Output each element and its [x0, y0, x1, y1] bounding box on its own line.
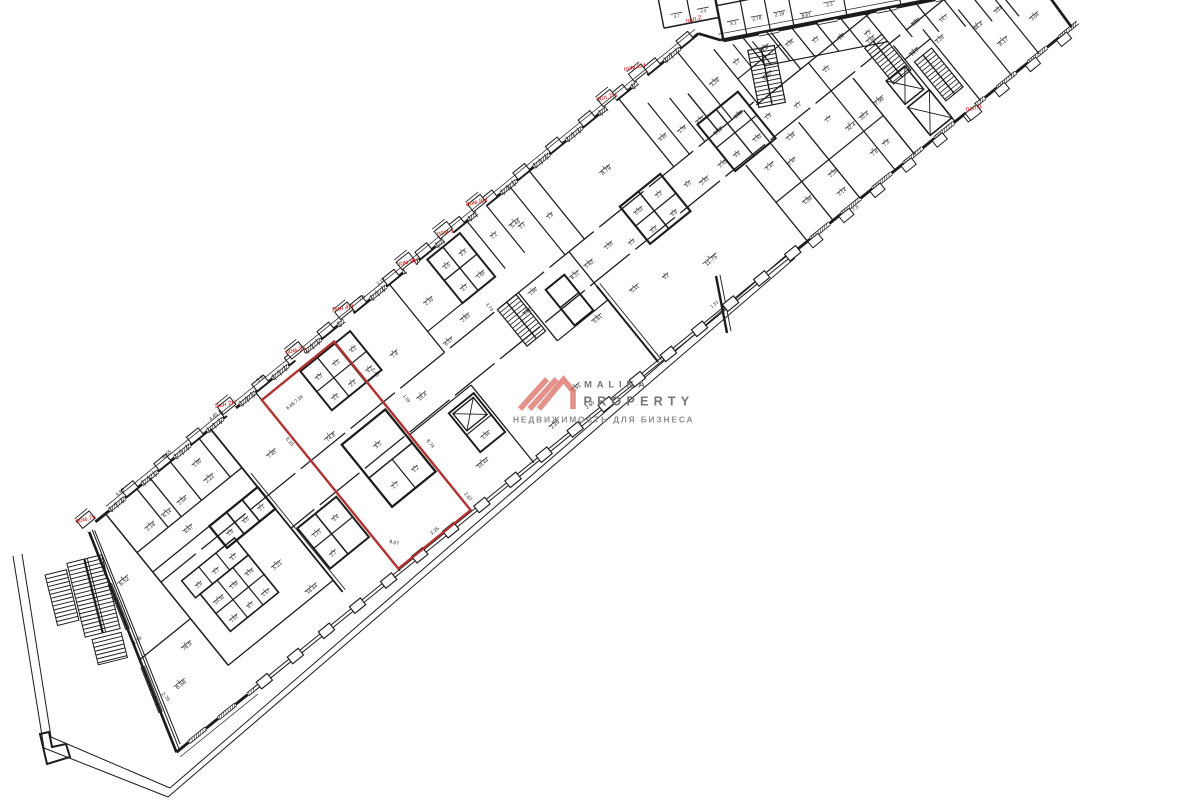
- svg-text:MALINA: MALINA: [584, 380, 650, 391]
- svg-text:PROPERTY: PROPERTY: [584, 395, 695, 409]
- svg-text:НЕДВИЖИМОСТЬ ДЛЯ БИЗНЕСА: НЕДВИЖИМОСТЬ ДЛЯ БИЗНЕСА: [513, 415, 694, 425]
